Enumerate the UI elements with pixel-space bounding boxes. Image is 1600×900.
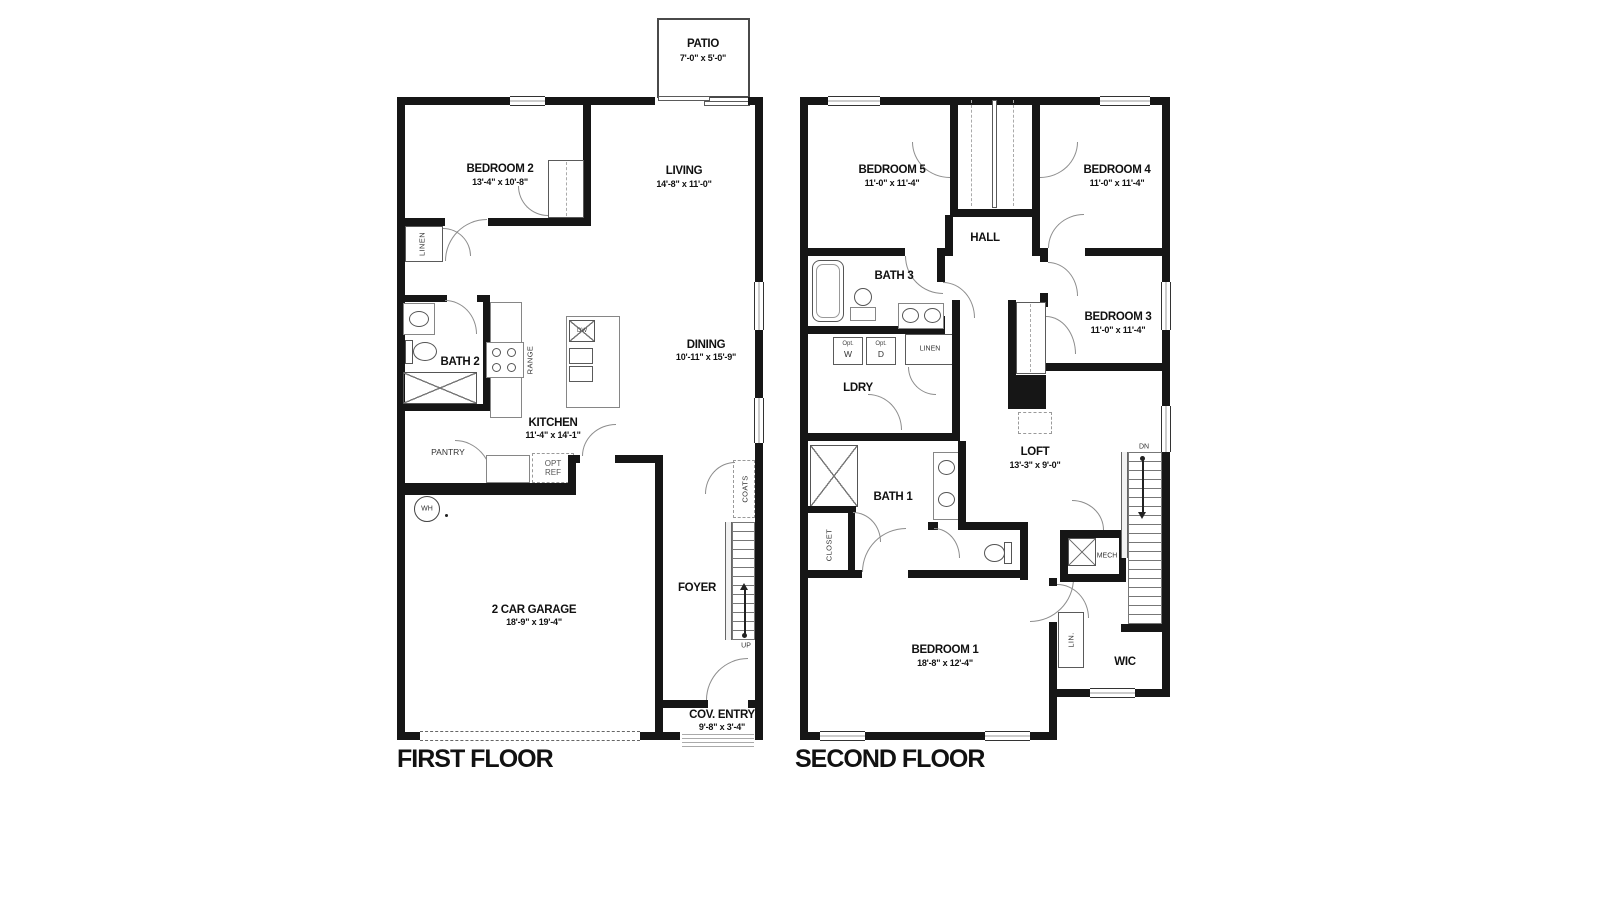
wall <box>568 455 580 463</box>
room-label-cov-entry: COV. ENTRY <box>689 709 755 721</box>
wall <box>800 732 820 740</box>
wall <box>945 215 953 256</box>
wall <box>800 570 862 578</box>
room-label-bedroom1: BEDROOM 1 <box>912 644 979 656</box>
label-range: RANGE <box>526 346 535 375</box>
stair-arrow-origin <box>742 633 747 638</box>
closet-divider <box>992 100 997 208</box>
closet-shelf-line <box>1030 304 1031 372</box>
closet-shelf-line <box>971 100 972 206</box>
toilet-base <box>850 307 876 321</box>
shower <box>403 372 477 404</box>
wall <box>950 209 1040 217</box>
wall <box>1032 97 1040 209</box>
room-label-garage: 2 CAR GARAGE <box>492 604 577 616</box>
room-label-patio: PATIO <box>687 38 719 50</box>
label-dn: DN <box>1139 444 1149 451</box>
room-dims-kitchen: 11'-4" x 14'-1" <box>525 430 580 440</box>
label-linen: LINEN <box>418 232 427 256</box>
wall <box>655 455 663 740</box>
wall <box>397 404 490 411</box>
door-arc <box>518 186 548 216</box>
room-dims-bedroom1: 18'-8" x 12'-4" <box>917 658 973 668</box>
label-closet: CLOSET <box>825 529 834 561</box>
room-label-wic: WIC <box>1114 656 1135 668</box>
wall <box>1121 624 1162 632</box>
wall <box>958 441 966 530</box>
entry-steps <box>682 734 754 747</box>
title-second-floor: SECOND FLOOR <box>795 745 984 774</box>
room-dims-garage: 18'-9" x 19'-4" <box>506 617 562 627</box>
wall <box>755 732 763 740</box>
staircase-down <box>1128 452 1162 624</box>
room-dims-cov-entry: 9'-8" x 3'-4" <box>699 722 745 732</box>
room-label-foyer: FOYER <box>678 582 716 594</box>
label-opt-washer: Opt. <box>842 341 853 347</box>
room-label-bedroom3: BEDROOM 3 <box>1085 311 1152 323</box>
label-dryer: D <box>878 349 884 359</box>
closet-shelf-line <box>1013 100 1014 206</box>
room-label-bath1: BATH 1 <box>874 491 913 503</box>
sliding-door-panel <box>658 96 710 101</box>
room-dims-loft: 13'-3" x 9'-0" <box>1009 460 1060 470</box>
room-dims-patio: 7'-0" x 5'-0" <box>680 53 726 63</box>
wall <box>397 218 445 226</box>
window <box>510 96 545 106</box>
wall <box>1049 622 1057 732</box>
toilet <box>984 544 1005 562</box>
room-label-bedroom4: BEDROOM 4 <box>1084 164 1151 176</box>
door-arc <box>705 462 735 494</box>
wall <box>1008 300 1016 375</box>
wall <box>1049 578 1057 586</box>
wall <box>755 443 763 740</box>
toilet-tank <box>405 340 413 364</box>
label-coats: COATS <box>741 475 750 502</box>
arrow-down-icon <box>1138 512 1146 519</box>
range <box>486 342 524 378</box>
sliding-door-panel <box>704 101 750 106</box>
room-dims-bedroom5: 11'-0" x 11'-4" <box>865 178 920 188</box>
closet-bedroom3 <box>1016 302 1046 374</box>
label-opt-dryer: Opt. <box>875 341 886 347</box>
stair-direction-line <box>1142 460 1144 512</box>
label-up: UP <box>741 643 751 650</box>
door-arc <box>1072 500 1104 530</box>
sink-bowl <box>569 348 593 364</box>
mechanical-unit <box>1068 538 1096 566</box>
door-arc <box>1046 316 1076 354</box>
burner <box>492 363 501 372</box>
room-dims-living: 14'-8" x 11'-0" <box>656 179 711 189</box>
floor-drain <box>445 514 448 517</box>
wall <box>937 256 945 282</box>
toilet <box>413 342 437 361</box>
door-arc <box>445 300 477 334</box>
wall <box>800 97 808 740</box>
burner <box>507 363 516 372</box>
window <box>820 731 865 741</box>
floorplan-canvas: PATIO 7'-0" x 5'-0" BEDROOM 2 13'-4" x 1… <box>0 0 1600 900</box>
wall <box>962 522 1028 530</box>
wall <box>397 97 405 740</box>
label-water-heater: WH <box>421 506 433 513</box>
bathtub-inner <box>816 264 840 318</box>
wall <box>1060 530 1126 538</box>
label-linen2: LINEN <box>920 346 941 353</box>
wall <box>950 97 958 209</box>
wall <box>397 483 575 495</box>
wall <box>1162 452 1170 697</box>
window <box>1090 688 1135 698</box>
toilet-tank <box>1004 542 1012 564</box>
door-arc <box>1048 214 1084 248</box>
wall <box>583 97 591 226</box>
sink <box>924 308 941 323</box>
room-label-bath3: BATH 3 <box>875 270 914 282</box>
room-label-dining: DINING <box>687 339 725 351</box>
stair-rail <box>1121 452 1128 558</box>
closet-shelf-line <box>566 162 567 216</box>
room-label-loft: LOFT <box>1021 446 1050 458</box>
door-arc <box>706 658 748 700</box>
window <box>1161 282 1171 330</box>
kitchen-counter <box>486 455 530 483</box>
wall <box>1085 248 1170 256</box>
wall <box>545 97 655 105</box>
door-arc <box>868 394 902 430</box>
room-label-kitchen: KITCHEN <box>528 417 577 429</box>
room-label-ldry: LDRY <box>843 382 873 394</box>
sink <box>938 460 955 475</box>
label-dishwasher: DW <box>577 328 587 334</box>
shower <box>810 445 858 507</box>
room-dims-dining: 10'-11" x 15'-9" <box>676 352 736 362</box>
wall <box>755 330 763 398</box>
wall <box>397 97 510 105</box>
sink <box>409 311 429 327</box>
wall <box>1060 574 1126 582</box>
door-arc <box>908 367 936 395</box>
wall <box>865 732 985 740</box>
wall <box>397 732 420 740</box>
chase <box>1008 375 1046 409</box>
wall <box>397 295 447 302</box>
wall <box>663 700 708 708</box>
wall <box>952 300 960 441</box>
room-label-living: LIVING <box>666 165 703 177</box>
wall <box>1046 363 1170 371</box>
room-dims-bedroom2: 13'-4" x 10'-8" <box>472 177 528 187</box>
room-dims-bedroom4: 11'-0" x 11'-4" <box>1090 178 1145 188</box>
window <box>1100 96 1150 106</box>
wall <box>800 433 960 441</box>
window <box>754 398 764 443</box>
wall <box>880 97 1100 105</box>
title-first-floor: FIRST FLOOR <box>397 745 553 774</box>
burner <box>492 348 501 357</box>
room-label-mech: MECH <box>1097 553 1118 560</box>
window <box>985 731 1030 741</box>
sink <box>938 492 955 507</box>
room-label-hall: HALL <box>970 232 999 244</box>
room-label-bath2: BATH 2 <box>441 356 480 368</box>
door-arc <box>1048 262 1078 296</box>
door-arc <box>582 424 616 456</box>
window <box>754 282 764 330</box>
stair-direction-line <box>744 590 746 635</box>
wall <box>748 700 763 708</box>
garage-door <box>420 731 640 741</box>
label-opt-ref: OPT REF <box>538 459 568 477</box>
sink <box>902 308 919 323</box>
stair-rail <box>725 522 732 640</box>
wall <box>908 570 1028 578</box>
window <box>828 96 880 106</box>
room-label-bedroom2: BEDROOM 2 <box>467 163 534 175</box>
window <box>1161 406 1171 452</box>
wall <box>1040 248 1048 262</box>
toilet <box>854 288 872 306</box>
burner <box>507 348 516 357</box>
wall <box>800 248 905 256</box>
room-label-bedroom5: BEDROOM 5 <box>859 164 926 176</box>
room-dims-bedroom3: 11'-0" x 11'-4" <box>1091 325 1146 335</box>
wall <box>1135 689 1170 697</box>
door-arc <box>1040 142 1078 178</box>
door-arc <box>934 528 960 558</box>
sink-bowl <box>569 366 593 382</box>
attic-access <box>1018 412 1052 434</box>
bathtub <box>812 260 844 322</box>
wall <box>488 218 591 226</box>
label-lin: LIN. <box>1067 632 1076 647</box>
wall <box>477 295 490 302</box>
wall <box>755 97 763 282</box>
arrow-up-icon <box>740 583 748 590</box>
label-washer: W <box>844 349 852 359</box>
